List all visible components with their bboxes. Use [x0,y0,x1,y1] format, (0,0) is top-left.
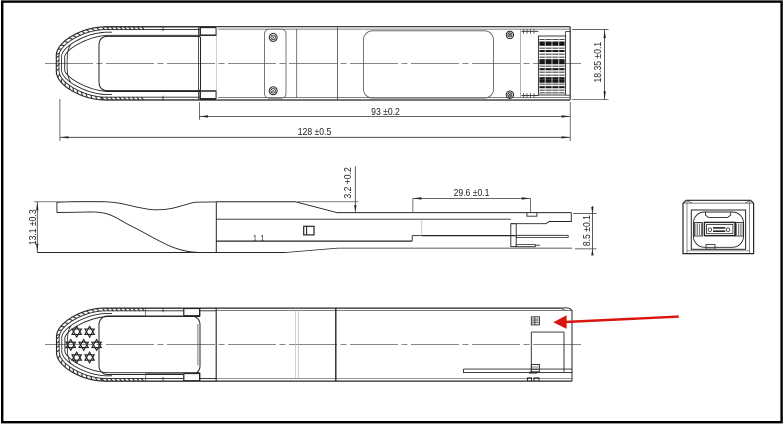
svg-text:29.6 ±0.1: 29.6 ±0.1 [454,187,490,199]
svg-text:1: 1 [260,234,264,243]
svg-text:13.1 ±0.3: 13.1 ±0.3 [28,209,40,245]
svg-text:8.5 ±0.1: 8.5 ±0.1 [581,215,593,246]
svg-text:18.35 ±0.1: 18.35 ±0.1 [593,42,605,83]
svg-text:3.2 +0.2: 3.2 +0.2 [342,167,354,198]
svg-text:128 ±0.5: 128 ±0.5 [298,126,331,138]
svg-text:93 ±0.2: 93 ±0.2 [371,106,400,118]
svg-text:1: 1 [253,234,257,243]
